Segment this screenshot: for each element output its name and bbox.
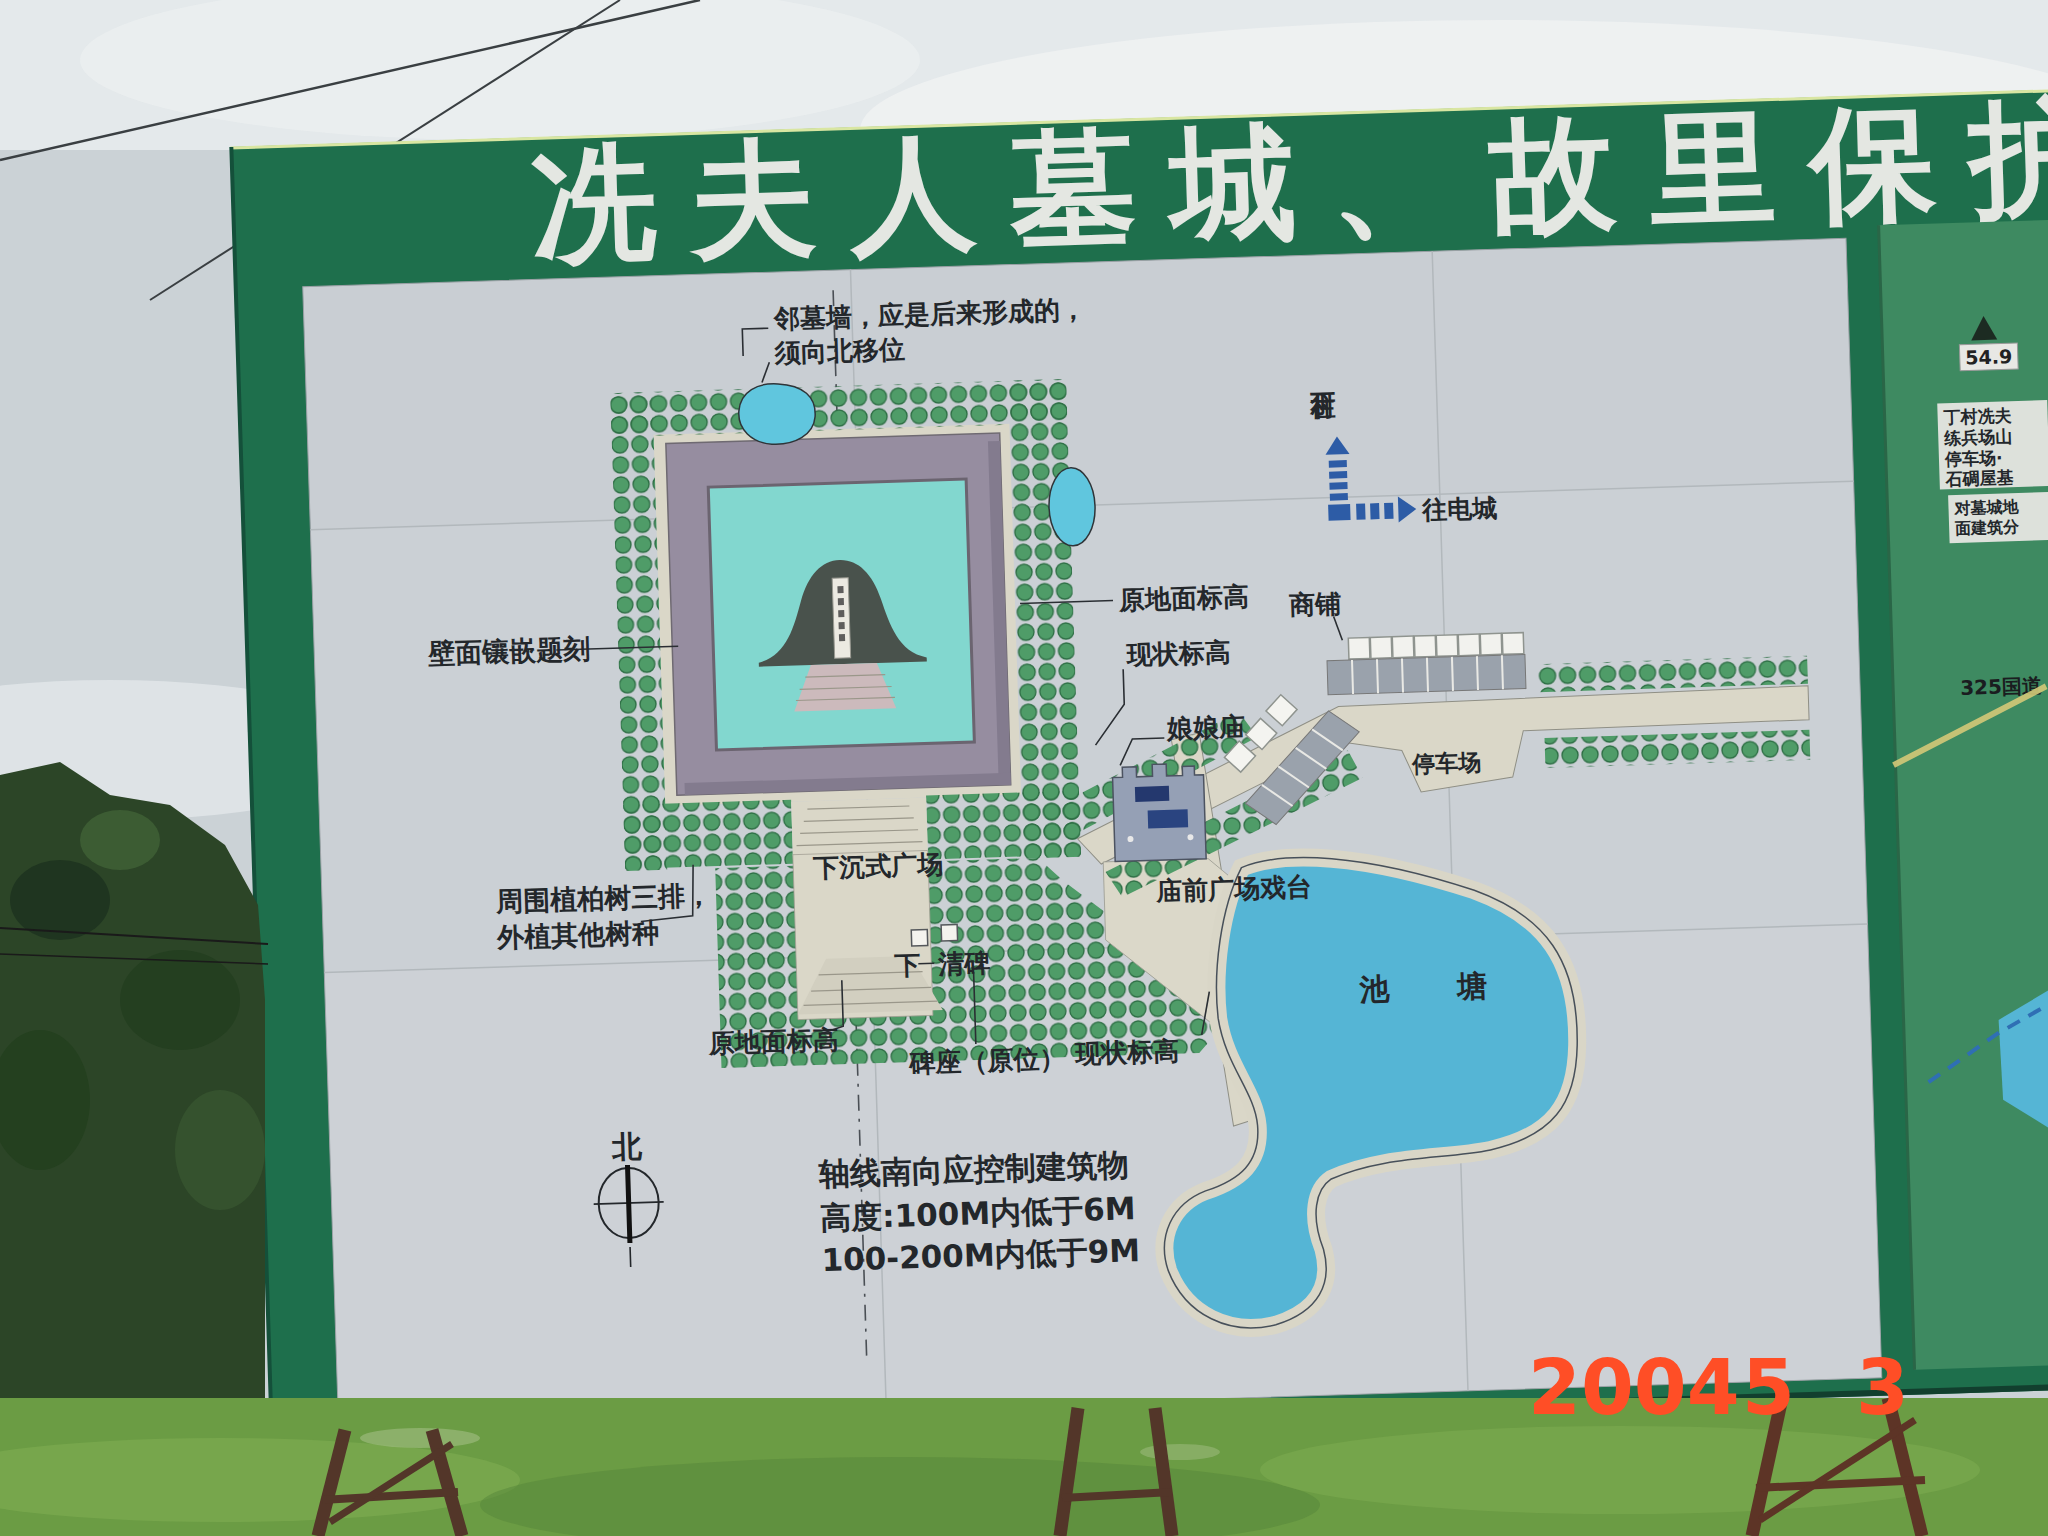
timestamp-month: 5 [1742,1343,1795,1432]
timestamp-year: 2004 [1528,1343,1740,1432]
temple-door [1135,786,1169,802]
orig-ground-bottom-label: 原地面标高 [707,1024,839,1058]
tree-highlight [175,1090,265,1210]
scene: 冼夫人墓城、故里保护 [0,0,2048,1536]
leader-qingbei [918,963,934,964]
current-level-right-label: 现状标高 [1125,637,1231,670]
grass-patch [1260,1426,1980,1514]
inset-box1-line3: 停车场· [1944,448,2003,470]
tree-area [623,800,793,869]
trees-note-line2: 外植其他树种 [496,917,660,953]
trees-left [0,762,268,1430]
tree-area [926,791,1081,860]
stele-marker [911,930,927,946]
inset-box1-line2: 练兵场山 [1943,426,2013,448]
photo-of-signboard: 冼夫人墓城、故里保护 [0,0,2048,1536]
temple-plaza-label: 庙前广场戏台 [1155,871,1313,906]
grass-patch [360,1428,480,1448]
billboard: 冼夫人墓城、故里保护 [230,78,2048,1447]
sunken-plaza-label: 下沉式广场 [812,849,944,883]
xia-label: 下 [893,950,921,981]
temple-hall [1148,809,1189,828]
timestamp-day: 3 [1856,1343,1909,1432]
grass [0,1398,2048,1536]
tomb-complex [610,379,1081,871]
tree-shadow [10,860,110,940]
wall-inscription-label: 壁面镶嵌题刻 [427,633,591,669]
inset-box2-line1: 对墓城地 [1953,497,2019,518]
temple-label: 娘娘庙 [1166,711,1246,743]
qingbei-label: 清碑 [937,948,991,980]
to-diancheng-label: 往电城 [1421,493,1498,524]
grass-patch [1140,1444,1220,1460]
top-note-line2: 须向北移位 [774,334,906,368]
pond-label: 池塘 [1358,966,1556,1007]
inset-box1-line4: 石碉屋基 [1944,467,2014,489]
elevation-label: 54.9 [1965,345,2013,368]
map-panel: 邻墓墙，应是后来形成的， 须向北移位 往丁村 往电城 原地面标高 现状标高 商铺… [303,238,1882,1426]
inset-box1-line1: 丁村冼夫 [1942,405,2012,427]
parking-label: 停车场 [1411,749,1482,777]
north-label: 北 [610,1129,643,1165]
tree-shadow [120,950,240,1050]
current-level-bottom-label: 现状标高 [1074,1036,1180,1069]
pedestal-label: 碑座（原位） [908,1043,1066,1078]
shops-label: 商铺 [1288,588,1342,620]
temple-building [1112,763,1206,862]
inset-box2-line2: 面建筑分 [1955,517,2021,538]
tree-highlight [80,810,160,870]
orig-ground-right-label: 原地面标高 [1118,581,1250,615]
pond-north [738,382,816,445]
stele-marker [941,925,957,941]
